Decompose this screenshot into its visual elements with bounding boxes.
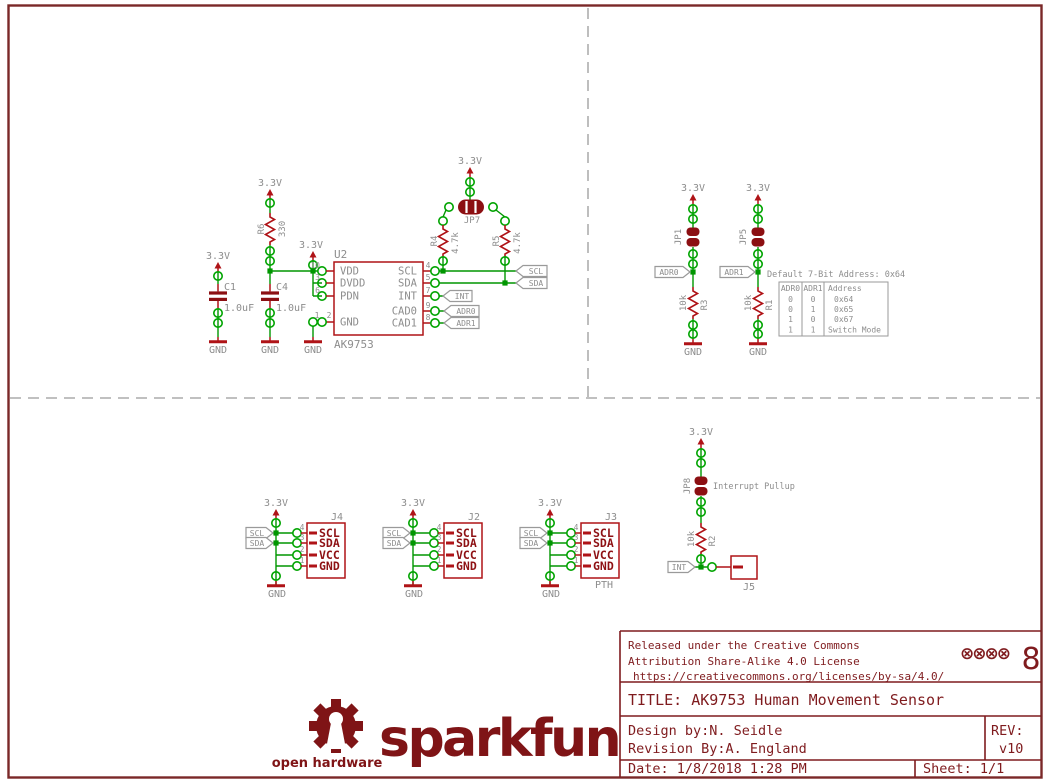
header-j4: 3.3V SCL SDA 4 3 2 1 SCL SDA VCC GND J4 [246, 498, 345, 600]
table-cell: 1 [788, 326, 793, 335]
pin-num-scl: 4 [426, 261, 431, 270]
power-arrow-icon [698, 438, 705, 448]
solder-jumper-jp8 [695, 477, 708, 496]
table-cell: 1 [811, 326, 816, 335]
adr0-branch: 3.3V JP1 ADR0 10k R3 GND [655, 183, 710, 358]
solder-jumper-jp1 [687, 228, 700, 247]
table-cell: 0 [788, 295, 793, 304]
conn-pin-label: GND [593, 559, 614, 573]
section-power-ic: 3.3V C1 1.0uF GND 3.3V R6 330 [206, 156, 547, 356]
flag-label-scl: SCL [250, 529, 265, 538]
power-arrow-icon [215, 262, 222, 272]
net-label-gnd: GND [268, 589, 286, 600]
flag-label-int: INT [672, 563, 687, 572]
net-label-3v3: 3.3V [681, 183, 705, 194]
license-line1: Released under the Creative Commons [628, 639, 860, 652]
table-cell: 0 [811, 315, 816, 324]
net-label-3v3: 3.3V [538, 498, 562, 509]
pin-num-sda: 5 [426, 273, 431, 282]
pin-num-cad1: 8 [426, 313, 431, 322]
gnd-symbol [404, 581, 422, 586]
pin-num: 1 [574, 556, 579, 565]
ref-r3: R3 [700, 300, 710, 311]
ic-power-column: 3.3V 10 3 6 [299, 240, 334, 300]
logos: open hardware sparkfun [272, 699, 619, 771]
ref-j3: J3 [605, 512, 617, 523]
sheet-title: TITLE: AK9753 Human Movement Sensor [628, 691, 944, 709]
solder-jumper-jp5 [752, 228, 765, 247]
net-label-gnd: GND [542, 589, 560, 600]
table-cell: 1 [811, 305, 816, 314]
pin-name-cad1: CAD1 [392, 318, 417, 330]
section-address-jumpers: 3.3V JP1 ADR0 10k R3 GND 3.3V [655, 183, 905, 358]
flag-label-scl: SCL [387, 529, 402, 538]
schematic-sheet: 3.3V C1 1.0uF GND 3.3V R6 330 [0, 0, 1050, 784]
power-arrow-icon [410, 509, 417, 519]
ref-c4: C4 [276, 282, 288, 293]
sparkfun-logo: sparkfun [379, 709, 619, 769]
flag-label-sda: SDA [250, 539, 265, 548]
net-label-gnd: GND [304, 345, 322, 356]
pin-num: 2 [437, 545, 442, 554]
pin-num: 2 [300, 545, 305, 554]
header-j3: 3.3V SCL SDA 4 3 2 1 SCL SDA VCC GND J3 … [520, 498, 619, 600]
pin-num-gnd2: 2 [327, 311, 332, 320]
i2c-pullup-jumper: 3.3V JP7 R4 4.7k R5 4.7k [430, 156, 523, 283]
title-block: Released under the Creative Commons Attr… [620, 631, 1041, 777]
ref-r2: R2 [708, 536, 718, 547]
note-interrupt-pullup: Interrupt Pullup [713, 482, 795, 492]
net-label-3v3: 3.3V [264, 498, 288, 509]
section-interrupt: 3.3V JP8 Interrupt Pullup 10k R2 INT J5 [668, 427, 795, 593]
pin-num-cad0: 9 [426, 301, 431, 310]
power-arrow-icon [547, 509, 554, 519]
table-cell: 0x65 [834, 305, 853, 314]
resistor-r2 [697, 523, 706, 555]
pin-name-scl: SCL [398, 266, 417, 278]
gnd-symbol [267, 581, 285, 586]
net-label-3v3: 3.3V [401, 498, 425, 509]
license-line2: Attribution Share-Alike 4.0 License [628, 655, 860, 668]
net-label-3v3: 3.3V [299, 240, 323, 251]
table-cell: 1 [788, 315, 793, 324]
value-r3: 10k [679, 294, 689, 311]
resistor-r1 [754, 287, 763, 319]
value-r6: 330 [278, 221, 288, 237]
ic-gnd-branch: 1 2 GND [304, 311, 334, 356]
header-j2: 3.3V SCL SDA 4 3 2 1 SCL SDA VCC GND J2 [383, 498, 482, 600]
table-header-address: Address [828, 284, 862, 293]
gnd-symbol [209, 337, 227, 342]
flag-label-adr0: ADR0 [456, 307, 475, 316]
section-headers: 3.3V SCL SDA 4 3 2 1 SCL SDA VCC GND J4 [246, 498, 619, 600]
gnd-symbol [541, 581, 559, 586]
ref-c1: C1 [224, 282, 236, 293]
flag-label-adr0: ADR0 [659, 268, 678, 277]
pin-name-cad0: CAD0 [392, 306, 417, 318]
pin-name-sda: SDA [398, 278, 418, 290]
flag-label-scl: SCL [524, 529, 539, 538]
power-arrow-icon [273, 509, 280, 519]
ref-j5: J5 [743, 582, 755, 593]
ref-j4: J4 [331, 512, 343, 523]
value-c4: 1.0uF [276, 303, 306, 314]
pin-num: 4 [574, 523, 579, 532]
figure-eight-icon: 8 [1021, 642, 1040, 677]
pin-name-int: INT [398, 291, 418, 303]
pin-name-gnd: GND [340, 317, 359, 329]
crossed-circles-icon: ⊗⊗⊗⊗ [960, 644, 1010, 664]
net-label-gnd: GND [209, 345, 227, 356]
pin-num: 3 [437, 533, 442, 542]
flag-label-scl: SCL [529, 267, 544, 276]
flag-label-sda: SDA [524, 539, 539, 548]
design-by: Design by:N. Seidle [628, 723, 782, 739]
table-header-adr1: ADR1 [803, 284, 822, 293]
power-arrow-icon [467, 167, 474, 177]
pin-num: 3 [300, 533, 305, 542]
address-table: Default 7-Bit Address: 0x64 ADR0 ADR1 Ad… [767, 270, 905, 336]
net-label-3v3: 3.3V [258, 178, 282, 189]
pin-num-dvdd: 3 [315, 273, 320, 282]
ic-right-pins: 4 5 7 9 8 INT ADR0 ADR1 SCL SDA [423, 261, 547, 329]
value-c1: 1.0uF [224, 303, 254, 314]
ref-r1: R1 [765, 300, 775, 311]
gnd-symbol [684, 339, 702, 344]
pin-num: 3 [574, 533, 579, 542]
power-arrow-icon [690, 194, 697, 204]
table-cell: 0 [811, 295, 816, 304]
pin-num-pdn: 6 [315, 286, 320, 295]
ref-r6: R6 [257, 224, 267, 235]
sheet-border [9, 6, 1042, 778]
conn-pin-label: GND [456, 559, 477, 573]
rev-label: REV: [991, 723, 1024, 739]
table-cell: 0 [788, 305, 793, 314]
net-label-3v3: 3.3V [458, 156, 482, 167]
pin-num: 1 [437, 556, 442, 565]
net-label-3v3: 3.3V [206, 251, 230, 262]
ref-r5: R5 [492, 236, 502, 247]
flag-label-int: INT [455, 292, 470, 301]
pin-num: 4 [300, 523, 305, 532]
ref-j2: J2 [468, 512, 480, 523]
ref-u2: U2 [334, 248, 347, 261]
pin-name-pdn: PDN [340, 291, 359, 303]
pin-name-vdd: VDD [340, 266, 359, 278]
ic-u2: U2 AK9753 VDD DVDD PDN GND SCL SDA INT C… [334, 248, 423, 351]
ref-r4: R4 [430, 236, 440, 247]
value-u2: AK9753 [334, 338, 374, 351]
net-label-gnd: GND [684, 347, 702, 358]
sheet-number: Sheet: 1/1 [923, 761, 1004, 777]
pin-num-int: 7 [426, 286, 431, 295]
note-pth: PTH [595, 580, 613, 591]
table-cell: 0x67 [834, 315, 853, 324]
pin-num-vdd: 10 [310, 261, 320, 270]
address-table-title: Default 7-Bit Address: 0x64 [767, 270, 905, 280]
conn-pin-label: GND [319, 559, 340, 573]
ref-jp5: JP5 [739, 229, 749, 245]
power-arrow-icon [267, 189, 274, 199]
table-cell: Switch Mode [828, 326, 881, 335]
net-label-3v3: 3.3V [689, 427, 713, 438]
table-cell: 0x64 [834, 295, 853, 304]
gnd-symbol [749, 339, 767, 344]
license-url: https://creativecommons.org/licenses/by-… [633, 670, 944, 683]
net-label-3v3: 3.3V [746, 183, 770, 194]
ref-jp8: JP8 [683, 478, 693, 494]
table-header-adr0: ADR0 [781, 284, 800, 293]
ref-jp7: JP7 [464, 216, 480, 226]
pin-num-gnd1: 1 [315, 311, 320, 320]
pin-num: 4 [437, 523, 442, 532]
flag-label-sda: SDA [529, 279, 544, 288]
rev-value: v10 [999, 741, 1023, 757]
gnd-symbol [261, 337, 279, 342]
value-r4: 4.7k [451, 232, 461, 254]
pin-num: 2 [574, 545, 579, 554]
resistor-r3 [689, 287, 698, 319]
pin-name-dvdd: DVDD [340, 278, 365, 290]
pin-num: 1 [300, 556, 305, 565]
flag-label-adr1: ADR1 [456, 319, 475, 328]
net-label-gnd: GND [749, 347, 767, 358]
net-label-gnd: GND [405, 589, 423, 600]
gnd-symbol [304, 337, 322, 342]
power-arrow-icon [310, 251, 317, 261]
value-r5: 4.7k [513, 232, 523, 254]
flag-label-adr1: ADR1 [724, 268, 743, 277]
ref-jp1: JP1 [674, 229, 684, 245]
revision-by: Revision By:A. England [628, 741, 807, 757]
solder-jumper-jp7 [458, 200, 484, 215]
power-arrow-icon [755, 194, 762, 204]
value-r1: 10k [744, 294, 754, 311]
quadrant-dividers [10, 8, 1040, 398]
flag-label-sda: SDA [387, 539, 402, 548]
value-r2: 10k [687, 530, 697, 547]
open-hardware-label: open hardware [272, 756, 383, 771]
net-label-gnd: GND [261, 345, 279, 356]
date: Date: 1/8/2018 1:28 PM [628, 761, 807, 777]
open-hardware-gear-icon [309, 699, 363, 753]
cap-c1-branch: 3.3V C1 1.0uF GND [206, 251, 254, 356]
